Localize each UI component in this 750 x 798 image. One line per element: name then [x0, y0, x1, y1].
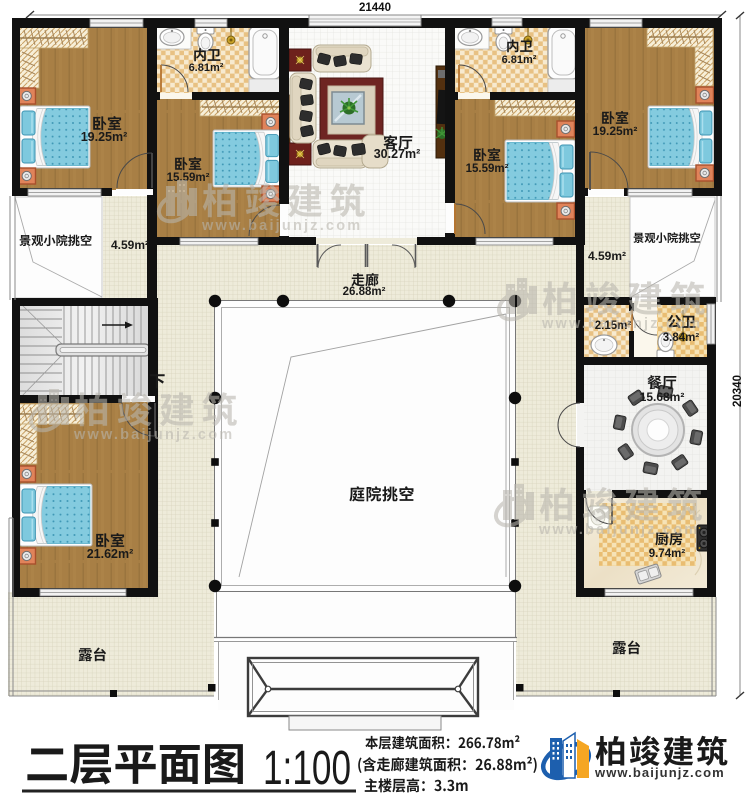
svg-text:4.59m²: 4.59m²	[111, 238, 149, 252]
svg-text:1:100: 1:100	[263, 742, 351, 795]
svg-text:9.74m²: 9.74m²	[649, 548, 686, 560]
svg-text:6.81m²: 6.81m²	[189, 62, 224, 74]
svg-text:21.62m²: 21.62m²	[87, 547, 134, 561]
svg-text:3.84m²: 3.84m²	[663, 332, 700, 344]
svg-text:20340: 20340	[732, 375, 744, 407]
svg-text:www.baijunjz.com: www.baijunjz.com	[541, 316, 702, 332]
svg-text:21440: 21440	[359, 2, 391, 14]
svg-text:30.27m²: 30.27m²	[374, 147, 421, 161]
svg-text:15.59m²: 15.59m²	[167, 172, 210, 184]
svg-text:www.baijunjz.com: www.baijunjz.com	[73, 427, 234, 443]
svg-text:15.68m²: 15.68m²	[640, 390, 685, 404]
svg-text:4.59m²: 4.59m²	[588, 249, 626, 263]
svg-text:6.81m²: 6.81m²	[502, 54, 537, 66]
svg-text:19.25m²: 19.25m²	[81, 130, 128, 144]
svg-text:26.88m²: 26.88m²	[343, 286, 386, 298]
svg-text:19.25m²: 19.25m²	[593, 124, 638, 138]
svg-text:15.59m²: 15.59m²	[466, 163, 509, 175]
svg-text:www.baijunjz.com: www.baijunjz.com	[594, 765, 725, 780]
svg-text:www.baijunjz.com: www.baijunjz.com	[201, 218, 362, 234]
svg-text:www.baijunjz.com: www.baijunjz.com	[538, 522, 699, 538]
